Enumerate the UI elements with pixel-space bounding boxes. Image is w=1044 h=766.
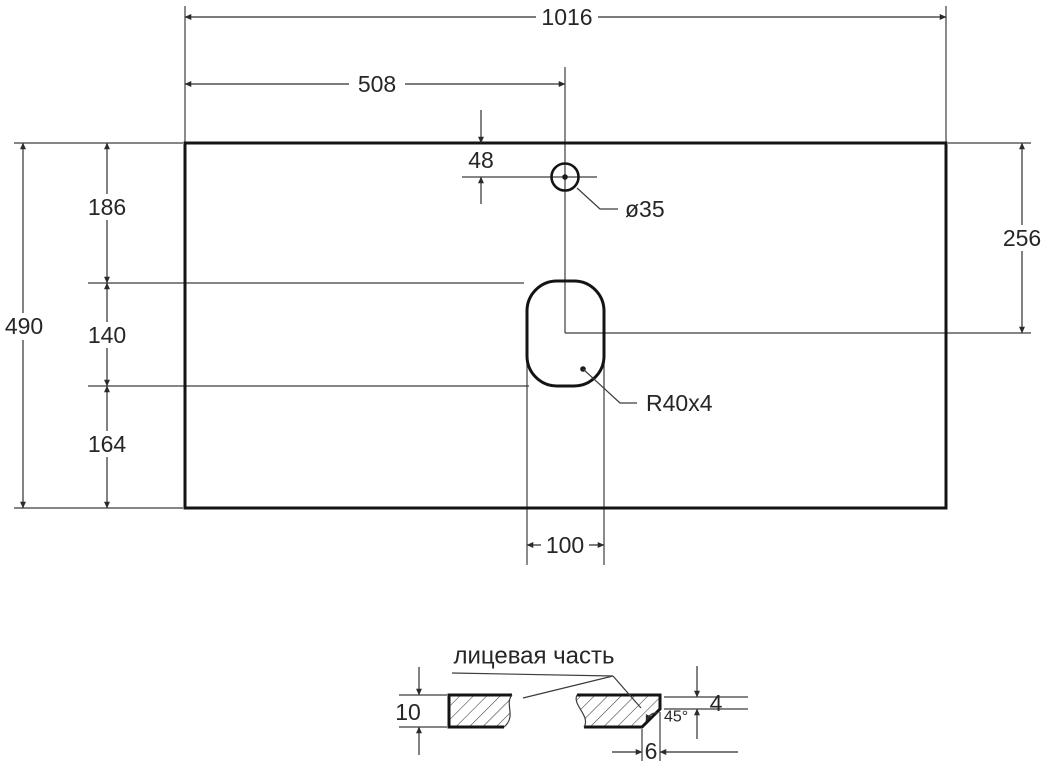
top-view: 1016 508 48 ø35 490 186 140 164 256	[0, 4, 1044, 565]
cutout-radius-leader	[583, 369, 637, 403]
dim-label-right-offset: 256	[1003, 225, 1041, 251]
technical-drawing: 1016 508 48 ø35 490 186 140 164 256	[0, 0, 1044, 766]
dim-label-chamfer-width: 6	[645, 738, 658, 764]
countertop-drawing-svg: 1016 508 48 ø35 490 186 140 164 256	[0, 0, 1044, 766]
hole-diameter-leader	[577, 188, 618, 209]
dim-label-hole-diameter: ø35	[625, 196, 665, 222]
dim-label-thickness: 10	[395, 699, 421, 725]
faucet-hole-center-dot	[562, 174, 568, 180]
section-left-hatch	[449, 695, 512, 727]
dim-label-cutout-width: 100	[546, 532, 584, 558]
dim-label-cutout-radius: R40x4	[646, 390, 713, 416]
dim-label-edge-height: 4	[710, 690, 723, 716]
dim-label-cutout-to-bottom: 164	[88, 431, 127, 457]
face-side-label: лицевая часть	[453, 643, 614, 670]
dim-label-cutout-height: 140	[88, 322, 126, 348]
dim-label-chamfer-angle: 45°	[664, 709, 688, 726]
dim-label-total-height: 490	[5, 313, 43, 339]
section-view: лицевая часть 10 4 45° 6	[395, 643, 748, 765]
dim-label-top-to-cutout: 186	[88, 194, 126, 220]
dim-label-hole-center-x: 508	[358, 71, 396, 97]
dim-label-hole-offset: 48	[468, 147, 494, 173]
dim-label-total-width: 1016	[541, 4, 592, 30]
